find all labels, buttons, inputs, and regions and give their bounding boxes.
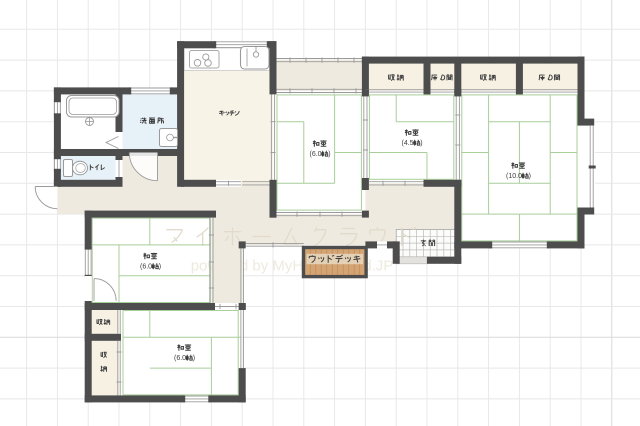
svg-text:(4.5: (4.5 (402, 140, 414, 147)
svg-text:): ) (420, 140, 422, 147)
svg-text:): ) (193, 355, 195, 362)
svg-text:(6.0: (6.0 (310, 151, 322, 158)
svg-text:): ) (159, 264, 161, 271)
svg-text:(6.0: (6.0 (174, 355, 186, 362)
svg-text:): ) (328, 151, 330, 158)
svg-text:): ) (529, 173, 531, 180)
svg-text:(10.0: (10.0 (506, 173, 522, 180)
svg-text:(6.0: (6.0 (140, 264, 152, 271)
